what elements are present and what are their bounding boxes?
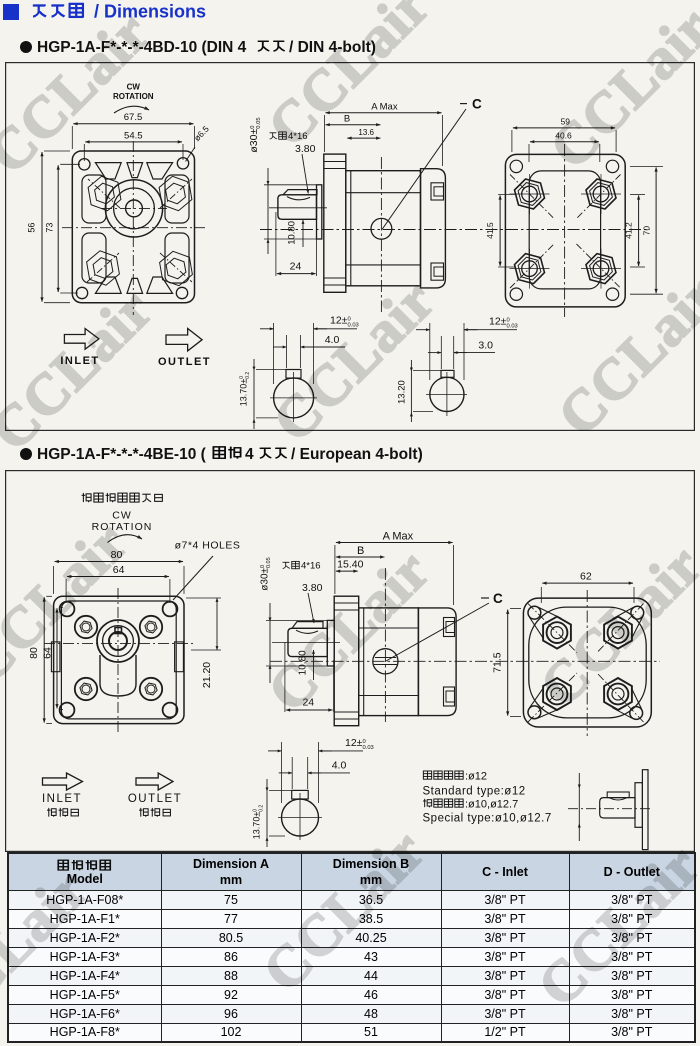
svg-text:24: 24	[290, 261, 302, 273]
svg-text:HGP-1A-F*-*-*-4BE-10 (: HGP-1A-F*-*-*-4BE-10 (	[37, 446, 207, 463]
svg-text:80: 80	[111, 549, 123, 561]
svg-text:INLET: INLET	[60, 355, 99, 367]
svg-text:62: 62	[580, 571, 592, 583]
svg-text:73: 73	[44, 223, 54, 233]
svg-text:10.80: 10.80	[287, 221, 298, 245]
svg-text:21.20: 21.20	[201, 662, 213, 688]
svg-text:3.0: 3.0	[478, 339, 493, 351]
svg-text:ø7*4 HOLES: ø7*4 HOLES	[175, 540, 241, 552]
svg-text:67.5: 67.5	[124, 112, 143, 123]
svg-text:CW: CW	[112, 510, 132, 522]
svg-text:10.80: 10.80	[297, 650, 308, 675]
svg-text:13.70±00.2: 13.70±00.2	[252, 805, 265, 840]
svg-text:56: 56	[26, 223, 36, 233]
svg-text:4: 4	[245, 446, 254, 463]
svg-text:ø30±00.05: ø30±00.05	[259, 557, 272, 590]
svg-text:13.70±00.2: 13.70±00.2	[238, 372, 251, 407]
svg-text:13.6: 13.6	[358, 128, 374, 137]
svg-text:/ DIN 4-bolt): / DIN 4-bolt)	[289, 39, 376, 56]
svg-text:3.80: 3.80	[295, 143, 316, 155]
svg-text:41.2: 41.2	[624, 222, 634, 239]
svg-text:54.5: 54.5	[124, 131, 143, 142]
svg-text:CW: CW	[127, 83, 141, 92]
svg-text:OUTLET: OUTLET	[158, 356, 211, 368]
svg-text:59: 59	[561, 116, 571, 126]
svg-text:12±00.03: 12±00.03	[330, 315, 359, 329]
svg-text:24: 24	[302, 697, 314, 709]
svg-text:Standard type:ø12: Standard type:ø12	[423, 786, 526, 798]
svg-text:4.0: 4.0	[325, 334, 340, 346]
svg-text:A Max: A Max	[383, 530, 414, 542]
svg-text:4.0: 4.0	[332, 760, 347, 772]
svg-text:INLET: INLET	[42, 793, 82, 805]
svg-text:ROTATION: ROTATION	[92, 521, 153, 533]
svg-text:Special type:ø10,ø12.7: Special type:ø10,ø12.7	[423, 813, 552, 825]
svg-text:71.5: 71.5	[491, 652, 503, 673]
svg-text:4*16: 4*16	[301, 561, 321, 572]
svg-text:41.5: 41.5	[485, 222, 495, 239]
svg-text:64: 64	[42, 647, 54, 659]
svg-text:/ European 4-bolt): / European 4-bolt)	[291, 446, 423, 463]
svg-text:12±00.03: 12±00.03	[489, 316, 518, 330]
svg-text:ROTATION: ROTATION	[113, 92, 154, 101]
svg-text:15.40: 15.40	[337, 559, 363, 571]
svg-text:3.80: 3.80	[302, 582, 323, 594]
svg-text:13.20: 13.20	[397, 380, 408, 404]
svg-text:B: B	[344, 114, 350, 125]
svg-text:64: 64	[113, 564, 125, 576]
svg-text:4*16: 4*16	[288, 131, 308, 142]
svg-text:HGP-1A-F*-*-*-4BD-10 (DIN 4: HGP-1A-F*-*-*-4BD-10 (DIN 4	[37, 39, 247, 56]
svg-text:/ Dimensions: / Dimensions	[94, 2, 206, 22]
svg-text:40.6: 40.6	[555, 131, 572, 141]
svg-text::ø10,ø12.7: :ø10,ø12.7	[465, 799, 518, 811]
svg-text:80: 80	[28, 647, 40, 659]
svg-text:A Max: A Max	[371, 102, 398, 113]
svg-text:C: C	[472, 97, 482, 112]
svg-text:70: 70	[641, 226, 651, 236]
svg-text::ø12: :ø12	[465, 771, 487, 783]
svg-text:B: B	[357, 545, 364, 557]
svg-text:C: C	[493, 591, 503, 606]
svg-text:OUTLET: OUTLET	[128, 793, 182, 805]
svg-text:ø30±00.05: ø30±00.05	[248, 117, 262, 152]
svg-text:12±00.03: 12±00.03	[345, 737, 374, 751]
